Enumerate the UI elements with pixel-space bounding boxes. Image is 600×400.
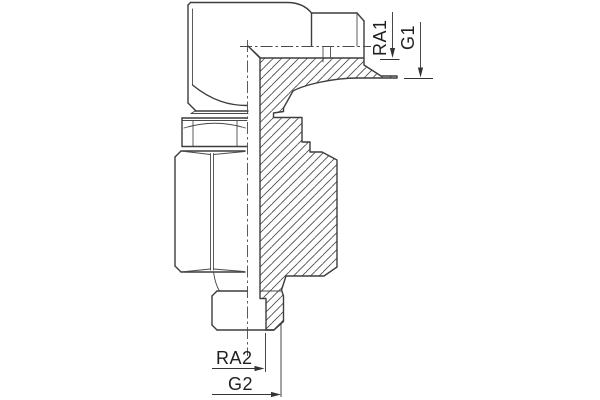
dimension-ra1: RA1 <box>370 12 400 60</box>
dimension-g1: G1 <box>398 22 433 79</box>
dim-arrow-g1 <box>418 68 423 78</box>
dimension-ra2: RA2 <box>212 333 266 372</box>
part-half-section <box>248 46 397 330</box>
dim-label-ra1: RA1 <box>370 19 390 56</box>
dim-label-ra2: RA2 <box>216 348 253 368</box>
drawing-figure: RA1 G1 RA2 G2 <box>0 0 600 400</box>
dim-label-g2: G2 <box>228 374 253 394</box>
dim-arrow-ra2 <box>255 366 265 371</box>
dim-arrow-g2 <box>271 392 281 397</box>
body-hex <box>175 151 245 272</box>
section-profile <box>248 46 397 330</box>
top-stud-port <box>312 13 365 58</box>
dim-arrow-ra1 <box>390 48 395 58</box>
technical-drawing-canvas: RA1 G1 RA2 G2 <box>0 0 600 400</box>
locknut-hex <box>182 118 247 147</box>
dim-label-g1: G1 <box>398 25 418 50</box>
